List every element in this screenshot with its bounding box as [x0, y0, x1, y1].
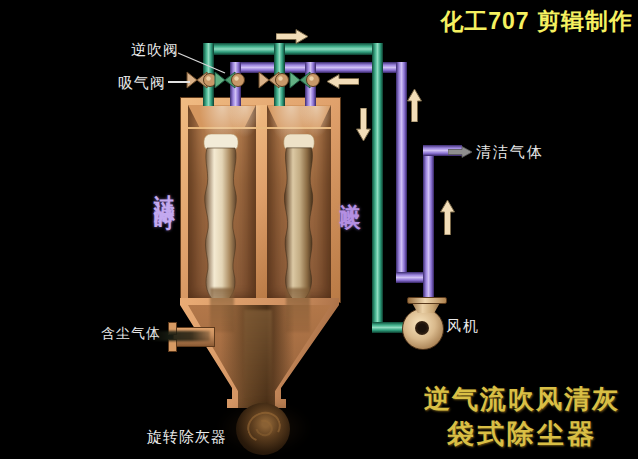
bag-filter-diagram: 化工707 剪辑制作 逆吹阀 吸气阀 清洁气体 风机 含尘气体 旋转除灰器 过滤… [0, 0, 638, 459]
blow-valve-2 [289, 70, 320, 90]
flow-arrow-up-icon [407, 88, 422, 122]
caption-line-2: 袋式除尘器 [412, 417, 632, 452]
filter-bag-right [282, 134, 316, 304]
dust-stream [286, 288, 310, 332]
flow-arrow-left-icon [326, 74, 359, 89]
blow-valve-callout-line [176, 50, 228, 76]
label-suction-valve: 吸气阀 [118, 74, 166, 93]
flow-arrow-down-icon [356, 108, 371, 142]
label-dusty-gas: 含尘气体 [101, 325, 161, 343]
label-fan: 风机 [446, 317, 480, 336]
label-rotary-ash-remover: 旋转除灰器 [147, 428, 227, 447]
suction-valve-callout-dash [168, 81, 190, 83]
fan-outlet-rim [407, 297, 447, 304]
suction-valve-2 [258, 70, 289, 90]
caption: 逆气流吹风清灰 袋式除尘器 [412, 383, 632, 452]
state-label-reverse-blow: 逆吹 [336, 186, 364, 200]
suction-pipe-fan-elbow [372, 322, 405, 333]
clean-gas-pointer-icon [448, 146, 473, 158]
dust-stream [244, 310, 272, 402]
dust-stream [210, 288, 234, 332]
watermark-title: 化工707 剪辑制作 [405, 6, 633, 37]
flow-arrow-right-icon [276, 29, 309, 44]
fan-eye [415, 321, 429, 335]
suction-pipe-top-rail [203, 43, 383, 55]
fan-outlet-riser [423, 145, 434, 303]
blow-pipe-right-vertical [396, 62, 407, 283]
state-label-filtering: 过滤时 [150, 178, 178, 199]
flow-arrow-up-clean-icon [440, 199, 455, 235]
suction-pipe-right-vertical [372, 43, 383, 333]
label-clean-gas: 清洁气体 [476, 143, 544, 162]
filter-bag-left [202, 134, 240, 306]
label-reverse-blow-valve: 逆吹阀 [131, 41, 179, 60]
caption-line-1: 逆气流吹风清灰 [412, 383, 632, 417]
